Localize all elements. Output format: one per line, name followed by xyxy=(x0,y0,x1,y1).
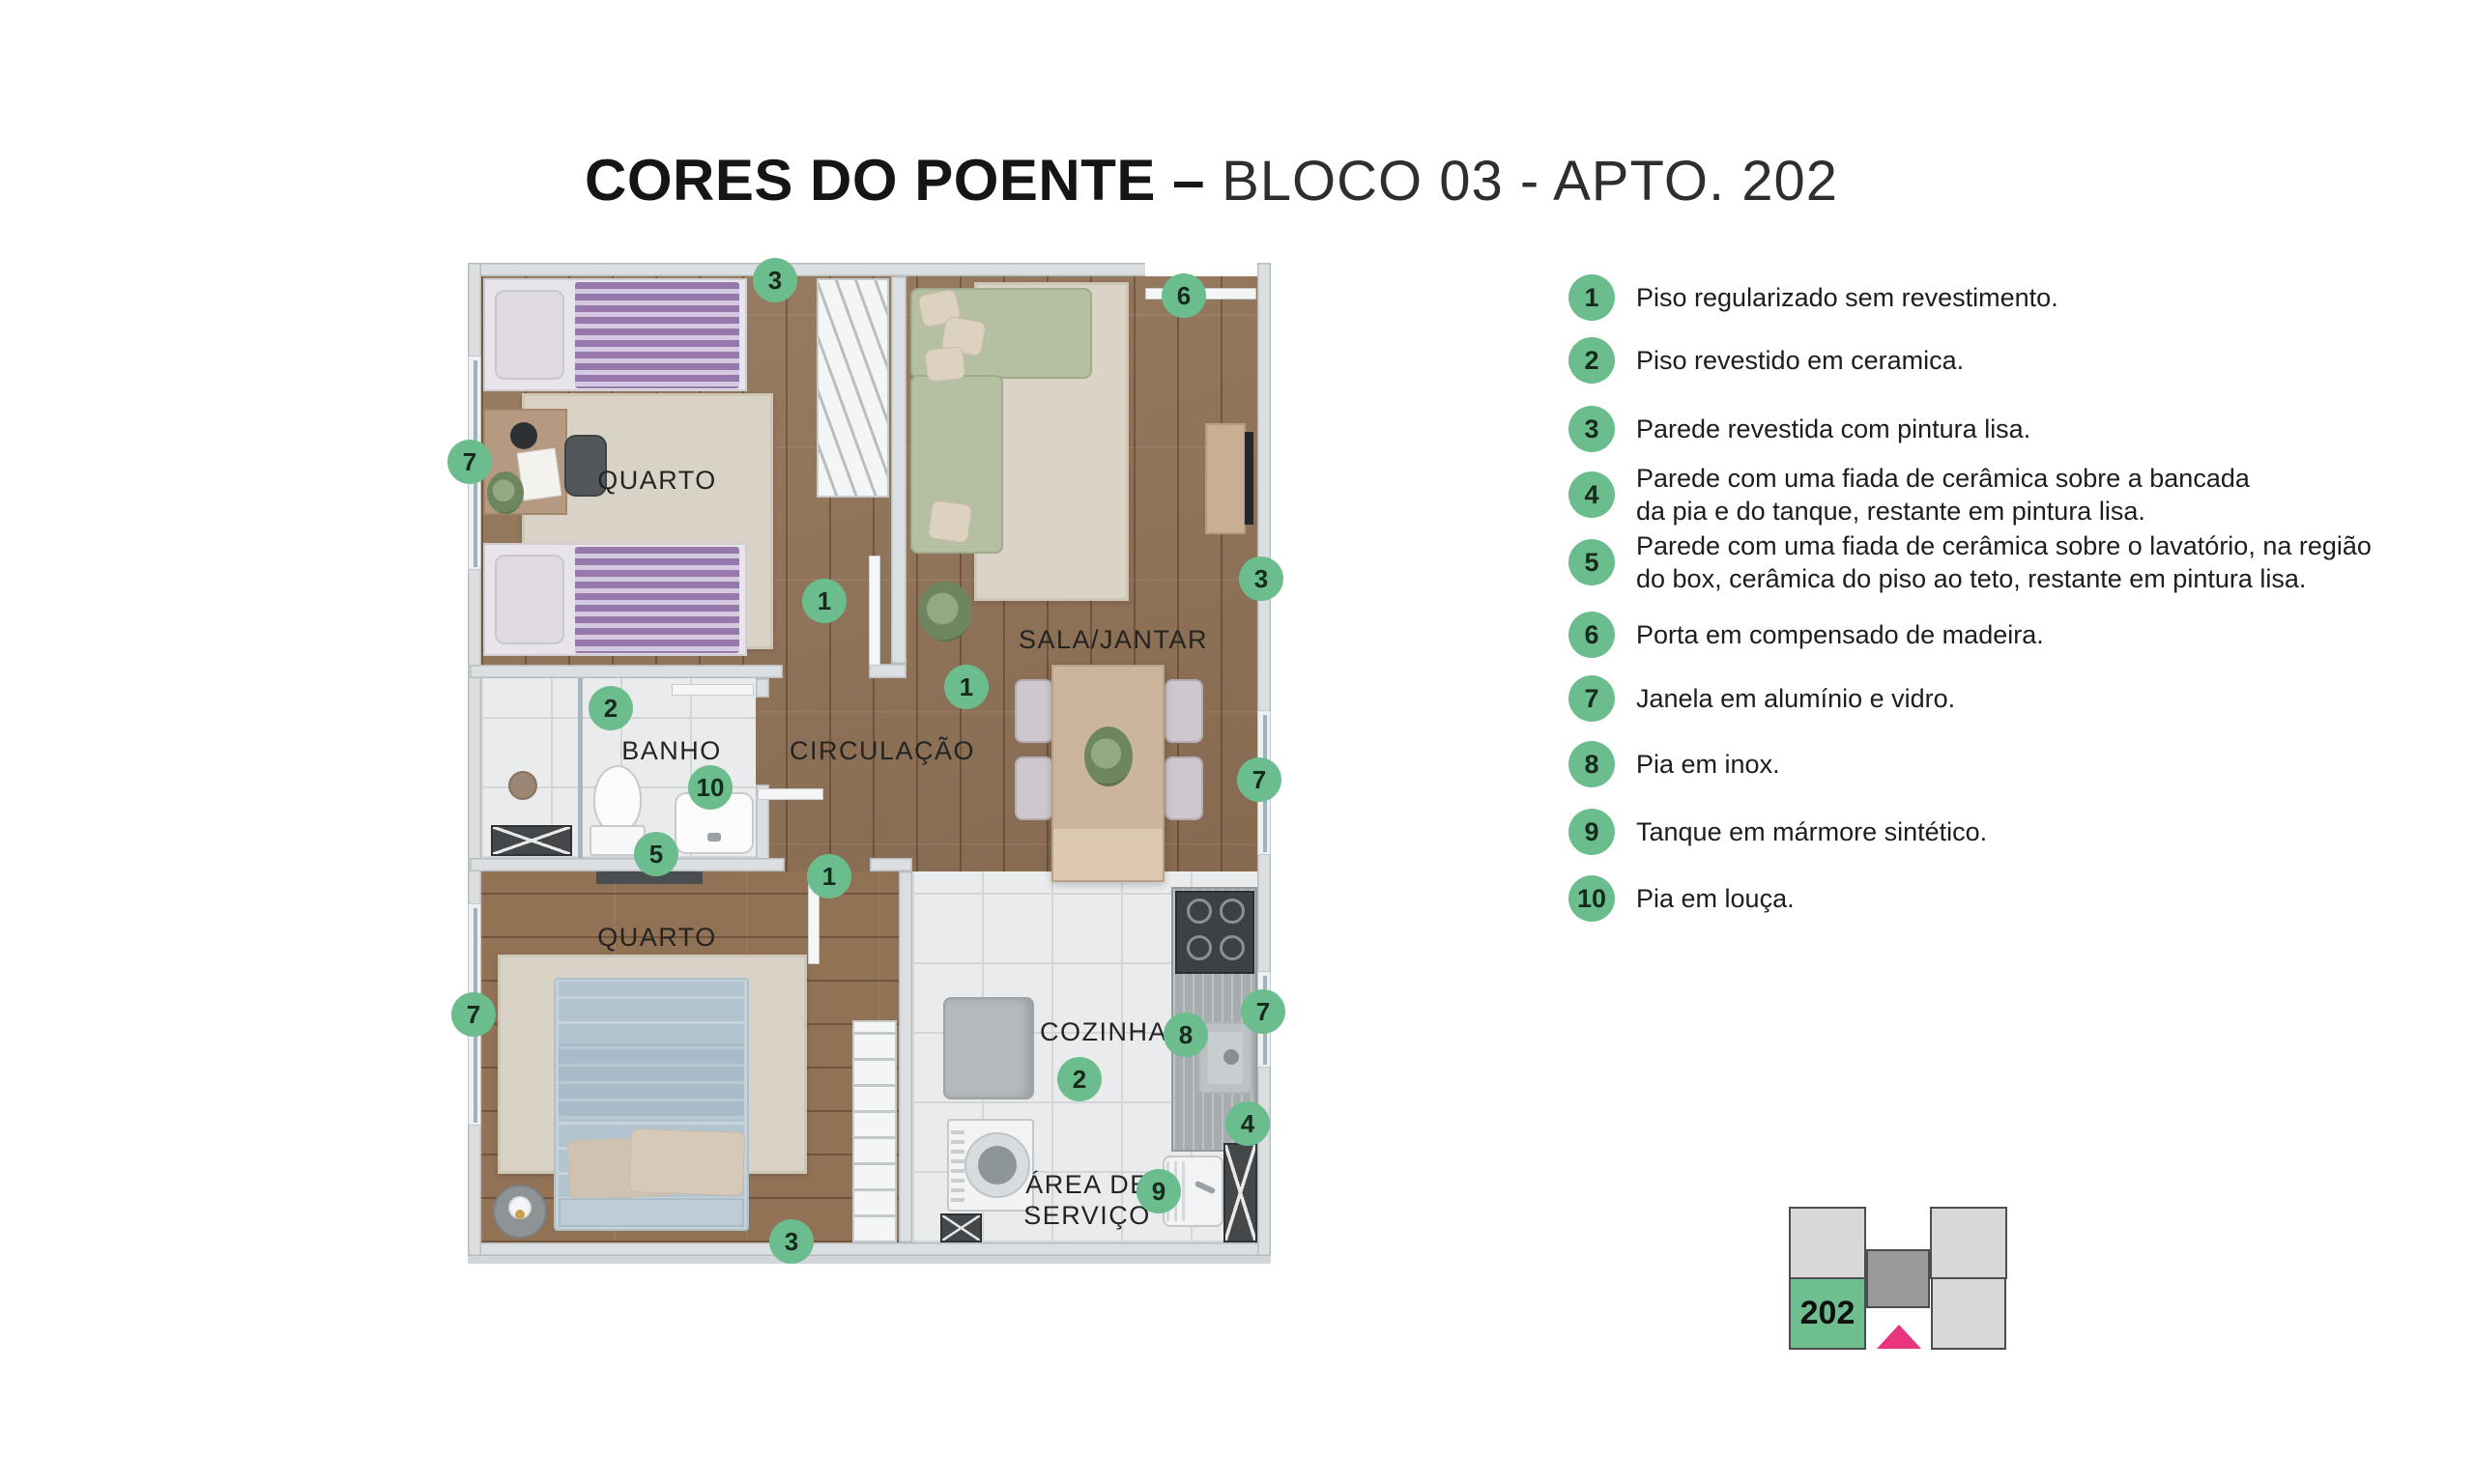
legend-badge-9: 9 xyxy=(1568,809,1615,855)
legend-badge-3: 3 xyxy=(1568,406,1615,452)
minimap-unit-label: 202 xyxy=(1800,1295,1855,1332)
legend-item-10: 10Pia em louça. xyxy=(1568,875,1795,922)
legend-item-5: 5Parede com uma fiada de cerâmica sobre … xyxy=(1568,529,2372,595)
minimap-position-arrow-icon xyxy=(1877,1325,1921,1349)
legend-item-4: 4Parede com uma fiada de cerâmica sobre … xyxy=(1568,462,2250,528)
minimap-unit-202: 202 xyxy=(1789,1277,1866,1350)
legend-text: Pia em louça. xyxy=(1636,882,1795,915)
minimap-block-top-left xyxy=(1789,1207,1866,1279)
legend-text: Piso regularizado sem revestimento. xyxy=(1636,281,2058,314)
legend-text: Parede com uma fiada de cerâmica sobre a… xyxy=(1636,462,2250,528)
legend-text: Parede com uma fiada de cerâmica sobre o… xyxy=(1636,529,2372,595)
legend-badge-2: 2 xyxy=(1568,337,1615,384)
legend-text: Pia em inox. xyxy=(1636,748,1780,781)
legend-badge-6: 6 xyxy=(1568,612,1615,658)
legend-item-6: 6Porta em compensado de madeira. xyxy=(1568,612,2044,658)
minimap-block-center xyxy=(1866,1249,1930,1308)
legend-badge-10: 10 xyxy=(1568,875,1615,922)
legend-item-9: 9Tanque em mármore sintético. xyxy=(1568,809,1987,855)
minimap-block-top-right xyxy=(1930,1207,2007,1279)
legend-item-1: 1Piso regularizado sem revestimento. xyxy=(1568,274,2058,321)
legend-text: Piso revestido em ceramica. xyxy=(1636,344,1964,377)
legend-item-2: 2Piso revestido em ceramica. xyxy=(1568,337,1964,384)
legend-text: Janela em alumínio e vidro. xyxy=(1636,682,1955,715)
legend-item-8: 8Pia em inox. xyxy=(1568,741,1780,787)
legend-text: Tanque em mármore sintético. xyxy=(1636,815,1987,848)
legend-badge-5: 5 xyxy=(1568,539,1615,585)
legend-item-7: 7Janela em alumínio e vidro. xyxy=(1568,675,1955,722)
minimap-block-bottom-right xyxy=(1931,1277,2006,1350)
legend-item-3: 3Parede revestida com pintura lisa. xyxy=(1568,406,2030,452)
legend-text: Porta em compensado de madeira. xyxy=(1636,618,2044,651)
page: CORES DO POENTE – BLOCO 03 - APTO. 202 xyxy=(0,0,2474,1484)
legend-badge-4: 4 xyxy=(1568,471,1615,518)
legend-text: Parede revestida com pintura lisa. xyxy=(1636,413,2030,445)
legend-badge-1: 1 xyxy=(1568,274,1615,321)
legend: 1Piso regularizado sem revestimento.2Pis… xyxy=(0,0,2474,1484)
legend-badge-7: 7 xyxy=(1568,675,1615,722)
legend-badge-8: 8 xyxy=(1568,741,1615,787)
